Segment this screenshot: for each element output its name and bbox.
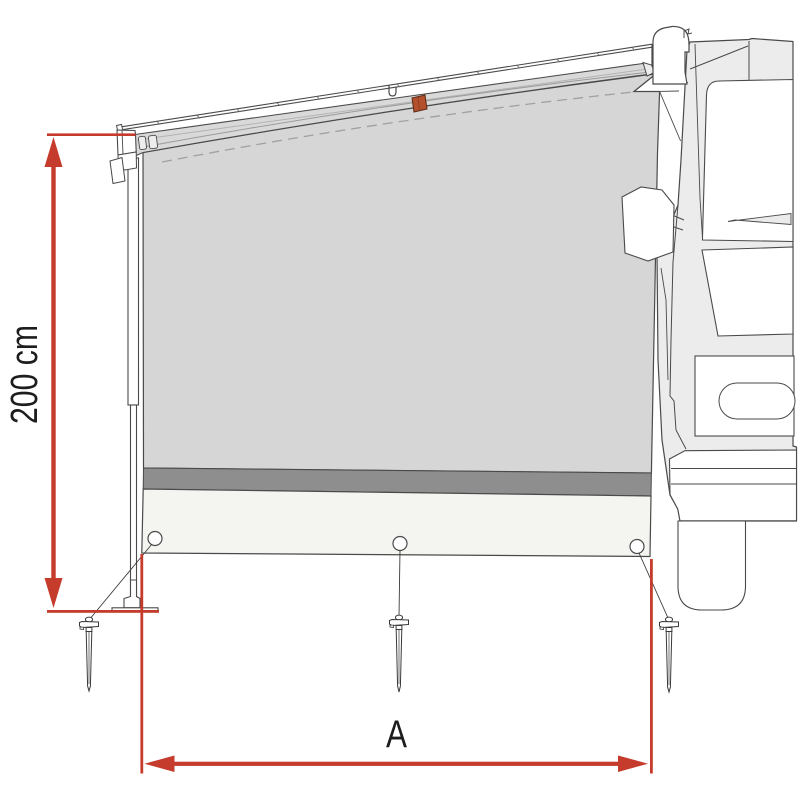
svg-text:A: A (386, 714, 407, 757)
svg-text:200 cm: 200 cm (4, 325, 46, 424)
